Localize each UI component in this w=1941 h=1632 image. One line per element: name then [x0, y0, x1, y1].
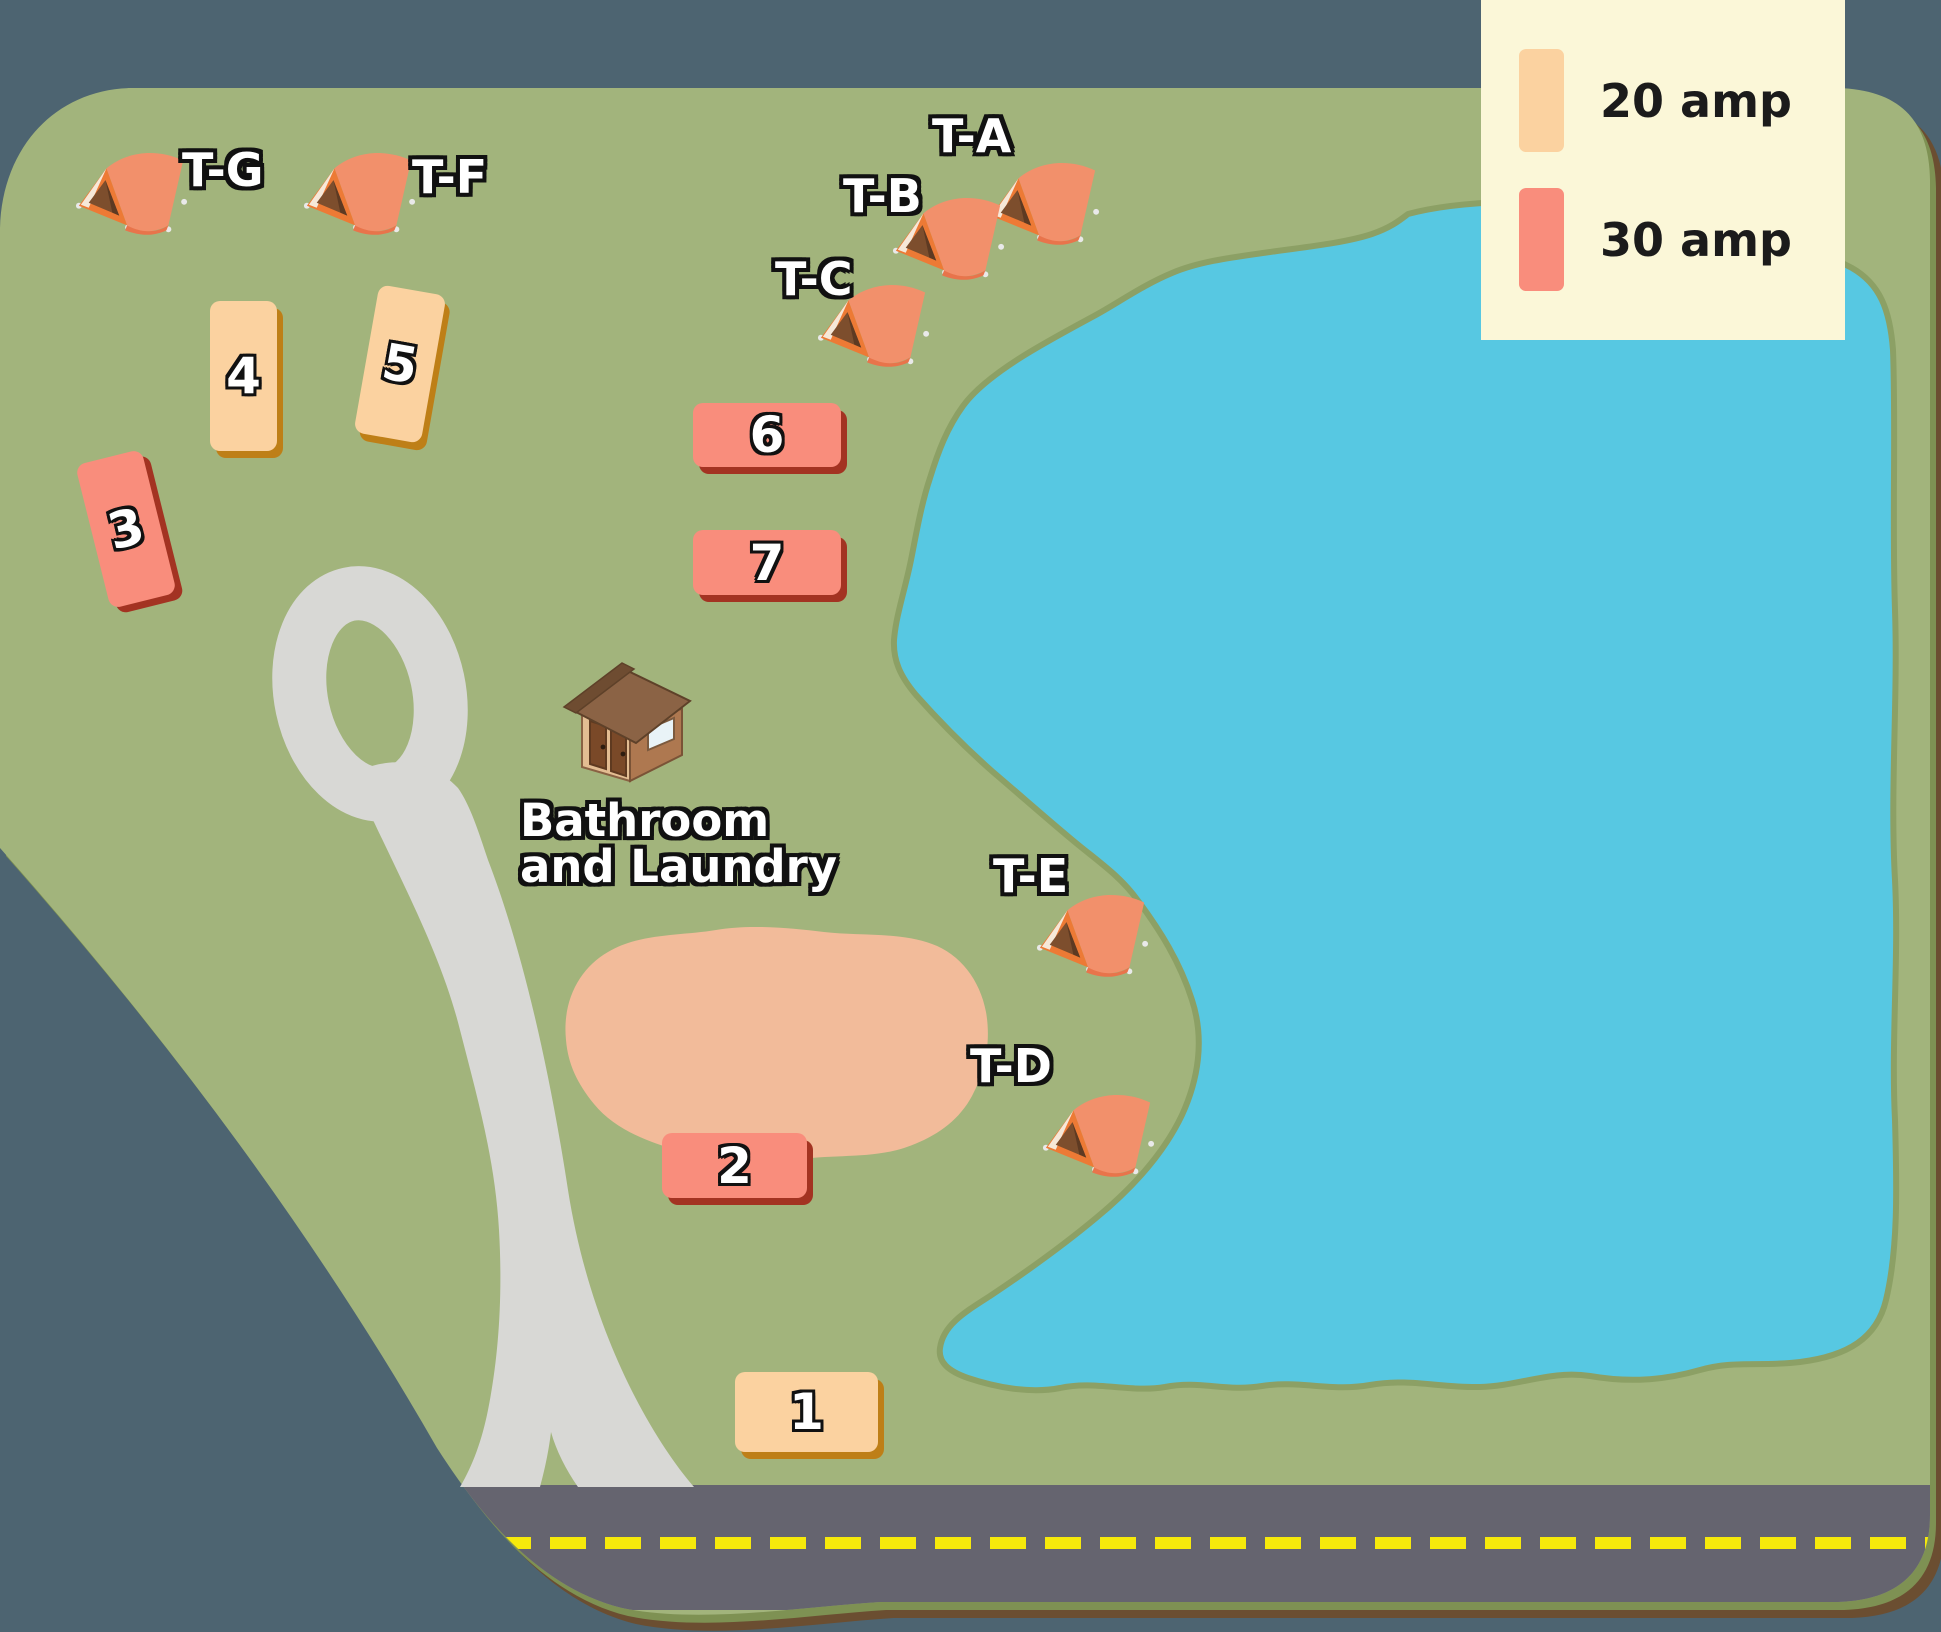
site-number: 2 — [717, 1137, 752, 1195]
legend-label-20amp: 20 amp — [1600, 74, 1792, 128]
20-amp-swatch — [1519, 49, 1564, 152]
site-number: 1 — [789, 1383, 824, 1441]
rv-site-2[interactable]: 2 — [662, 1133, 807, 1198]
legend-row-20amp: 20 amp — [1519, 49, 1845, 152]
rv-site-7[interactable]: 7 — [693, 530, 841, 595]
rv-site-1[interactable]: 1 — [735, 1372, 878, 1452]
legend-row-30amp: 30 amp — [1519, 188, 1845, 291]
site-number: 4 — [226, 347, 261, 405]
site-number: 6 — [750, 406, 785, 464]
tent-label: T-C — [775, 255, 852, 303]
site-number: 3 — [102, 497, 150, 562]
rv-site-6[interactable]: 6 — [693, 403, 841, 467]
bathroom-building[interactable] — [548, 645, 698, 785]
bathroom-label-line2: and Laundry — [520, 844, 837, 890]
tent-site-TF[interactable] — [301, 140, 419, 240]
legend-label-30amp: 30 amp — [1600, 213, 1792, 267]
site-number: 5 — [378, 332, 422, 395]
rv-site-4[interactable]: 4 — [210, 301, 277, 451]
campground-map: T-G T-F T-A T-B T-C T-E T-D 1 2 3 4 5 6 … — [0, 0, 1941, 1632]
bathroom-label: Bathroom and Laundry — [520, 798, 837, 890]
site-number: 7 — [750, 534, 785, 592]
tent-label: T-A — [932, 112, 1011, 160]
tent-site-TG[interactable] — [73, 140, 191, 240]
tent-label: T-D — [970, 1042, 1052, 1090]
30-amp-swatch — [1519, 188, 1564, 291]
tent-label: T-F — [412, 153, 487, 201]
tent-site-TD[interactable] — [1040, 1082, 1158, 1182]
clearing-area — [565, 927, 987, 1163]
legend: 20 amp 30 amp — [1481, 0, 1845, 340]
tent-label: T-B — [843, 172, 922, 220]
bathroom-label-line1: Bathroom — [520, 798, 837, 844]
tent-label: T-E — [993, 852, 1068, 900]
tent-label: T-G — [182, 146, 263, 194]
